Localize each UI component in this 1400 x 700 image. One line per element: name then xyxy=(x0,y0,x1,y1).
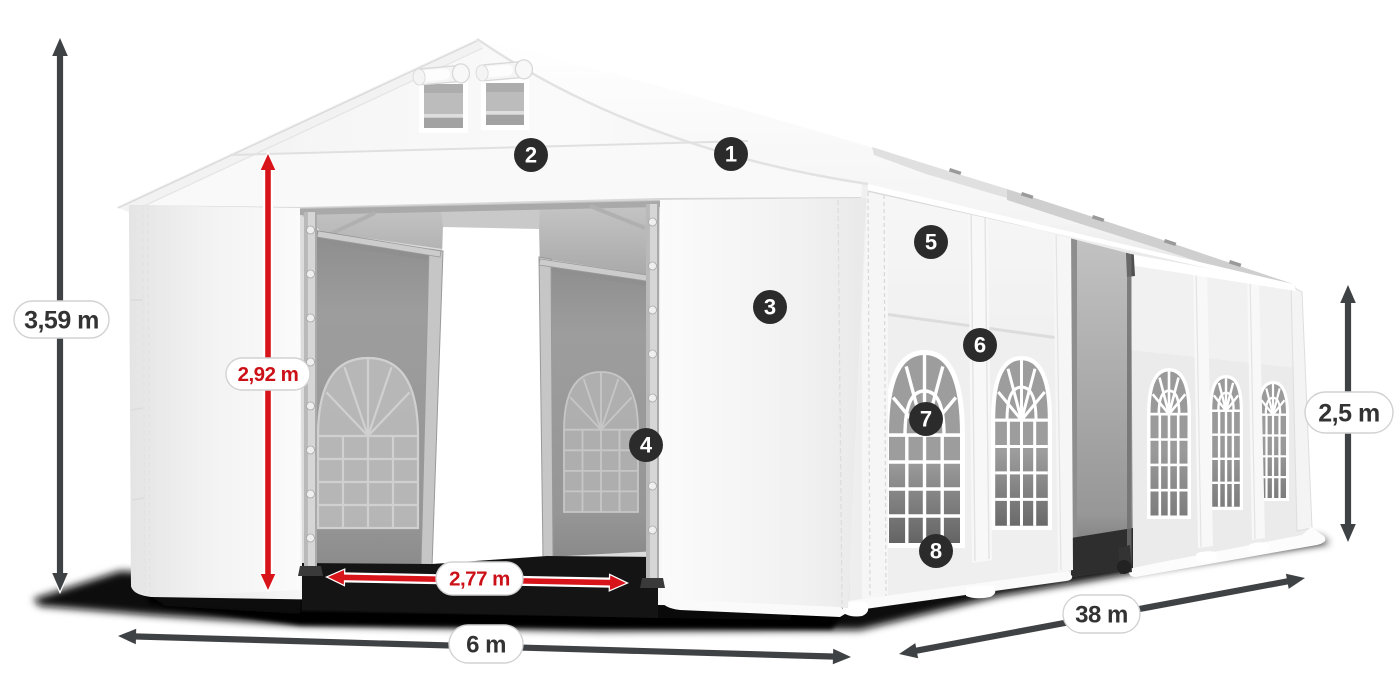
svg-text:2,5 m: 2,5 m xyxy=(1318,399,1379,427)
svg-text:1: 1 xyxy=(725,142,737,167)
svg-text:6: 6 xyxy=(974,333,986,358)
svg-text:38 m: 38 m xyxy=(1075,601,1128,628)
svg-text:2,92 m: 2,92 m xyxy=(238,363,299,386)
svg-text:3,59 m: 3,59 m xyxy=(24,306,99,334)
svg-text:7: 7 xyxy=(920,407,932,432)
svg-text:6 m: 6 m xyxy=(466,631,506,658)
svg-text:5: 5 xyxy=(925,230,937,255)
svg-text:8: 8 xyxy=(930,539,942,564)
svg-text:2: 2 xyxy=(525,143,537,168)
svg-text:4: 4 xyxy=(640,433,653,458)
svg-text:3: 3 xyxy=(764,295,776,320)
svg-text:2,77 m: 2,77 m xyxy=(449,568,510,591)
